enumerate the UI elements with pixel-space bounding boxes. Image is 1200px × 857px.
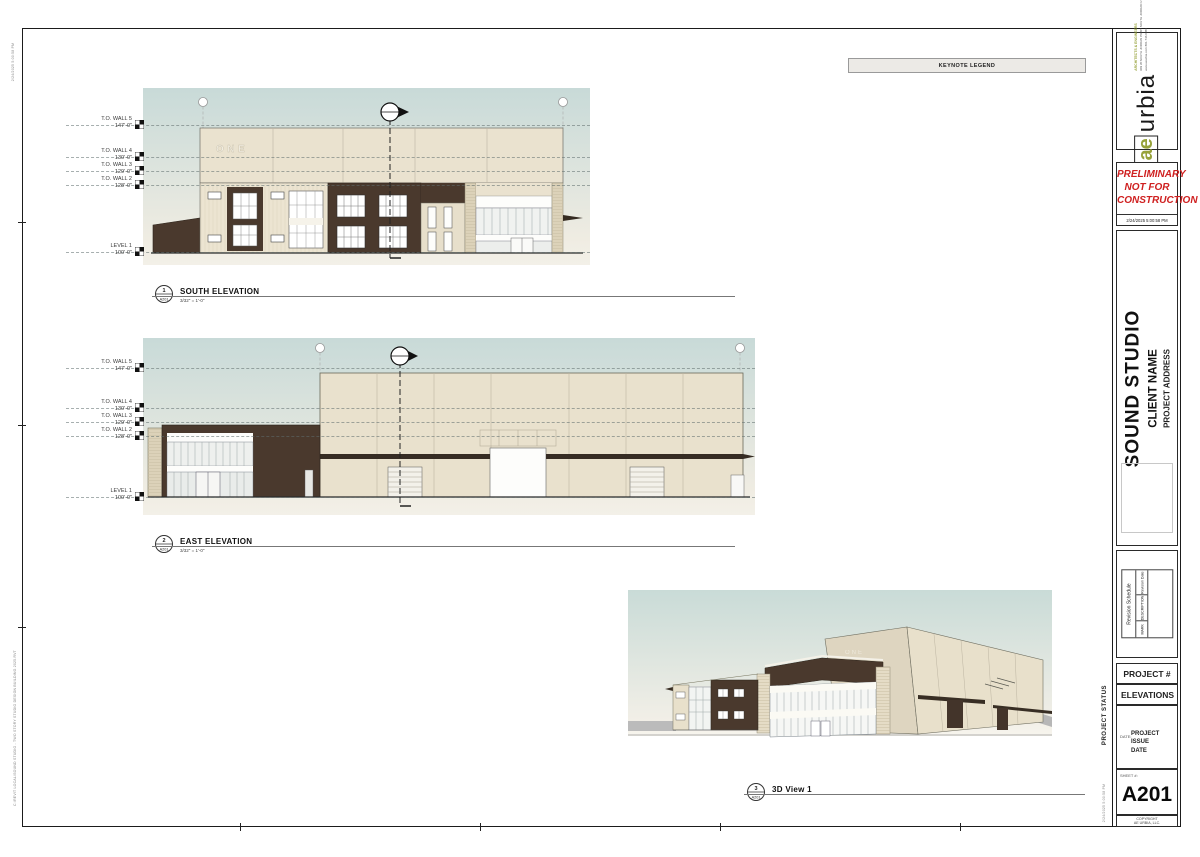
- issue-date: PROJECT ISSUE DATE: [1131, 730, 1177, 755]
- brick-texture: [148, 428, 162, 497]
- canopy-right: [546, 454, 743, 459]
- tan-strip: [673, 685, 689, 730]
- small-window: [676, 692, 685, 698]
- svg-text:2: 2: [162, 538, 165, 544]
- view-title: 3D View 1: [772, 785, 812, 794]
- level-line: [66, 125, 590, 126]
- keynote-legend-header: KEYNOTE LEGEND: [848, 58, 1086, 73]
- entry-door: [811, 721, 820, 736]
- level-marker-icon: [135, 152, 144, 161]
- client-name: CLIENT NAME: [1148, 309, 1160, 467]
- view-callout-icon: 2 A201: [152, 534, 176, 554]
- issue-date-line: DATE: [1131, 747, 1177, 755]
- level-marker-icon: [135, 247, 144, 256]
- project-status-text: PROJECT STATUS: [1102, 685, 1108, 745]
- building-sign: ONE: [845, 650, 864, 656]
- level-marker-icon: [135, 120, 144, 129]
- project-address: PROJECT ADDRESS: [1163, 309, 1172, 467]
- brick-texture: [552, 183, 563, 253]
- preliminary-line: PRELIMINARY: [1117, 168, 1177, 181]
- level-line: [66, 408, 755, 409]
- logo-box: ae urbia ARCHITECTS & ENGINEERS 909 W SO…: [1116, 32, 1178, 150]
- fascia-band: [476, 196, 552, 208]
- level-line: [66, 497, 755, 498]
- project-status-strip: PROJECT STATUS: [1098, 655, 1112, 775]
- level-marker-icon: [135, 417, 144, 426]
- sheet-number-label: SHEET #:: [1120, 773, 1138, 778]
- grid-bubble: [559, 98, 568, 107]
- border-tick: [480, 823, 481, 831]
- revision-schedule-header: MARK DESCRIPTION Revision Date: [1136, 571, 1148, 638]
- grid-bubble: [199, 98, 208, 107]
- svg-text:A201: A201: [752, 796, 761, 800]
- level-line: [66, 436, 755, 437]
- entry-door: [821, 721, 830, 736]
- tan-wall: [421, 203, 465, 253]
- view-title-rule: [152, 296, 735, 297]
- 3d-view-drawing: ONE: [625, 588, 1055, 772]
- level-line: [66, 252, 590, 253]
- building-sign: ONE: [216, 144, 248, 155]
- level-line: [66, 368, 755, 369]
- fascia-band: [167, 433, 253, 442]
- level-label: LEVEL 1100'-0": [58, 488, 132, 502]
- plot-stamp-path: C:\REVIT LOCAL\SOUND STUDIO - TWO STORY …: [8, 630, 22, 826]
- level-marker-icon: [135, 363, 144, 372]
- border-tick: [18, 425, 26, 426]
- glass-strip: [689, 687, 711, 730]
- brick-texture: [876, 667, 890, 734]
- titleblock-divider: [1112, 28, 1113, 827]
- ground-pad-left: [628, 721, 676, 731]
- svg-text:3: 3: [754, 786, 757, 792]
- view-callout-icon: 3 A201: [744, 782, 768, 802]
- plot-stamp-side-text: 2/24/2025 5:00:58 PM: [1102, 784, 1106, 822]
- upper-wall: [200, 128, 563, 183]
- preliminary-datetime: 2/24/2025 5:00:58 PM: [1117, 214, 1177, 225]
- window: [233, 225, 257, 246]
- brick-texture: [757, 674, 770, 733]
- sheet-number: A201: [1117, 783, 1177, 807]
- revision-col-date: Revision Date: [1136, 571, 1147, 595]
- canopy-left: [293, 454, 490, 459]
- border-tick: [18, 627, 26, 628]
- preliminary-stamp-box: PRELIMINARY NOT FOR CONSTRUCTION 2/24/20…: [1116, 162, 1178, 226]
- level-marker-icon: [135, 166, 144, 175]
- issue-date-line: PROJECT ISSUE: [1131, 730, 1177, 747]
- keynote-legend-title: KEYNOTE LEGEND: [939, 63, 996, 69]
- copyright-line: AE URBIA, LLC.: [1134, 821, 1160, 825]
- logo-details: ARCHITECTS & ENGINEERS 909 W SOUTH JORDA…: [1134, 19, 1148, 71]
- view-title-rule: [744, 794, 1085, 795]
- stamp-area-box: [1121, 463, 1173, 533]
- sheet-title-box: ELEVATIONS: [1116, 684, 1178, 705]
- copyright-box: COPYRIGHT AE URBIA, LLC.: [1116, 815, 1178, 827]
- south-elevation-drawing: ONE: [143, 88, 590, 265]
- revision-schedule-box: Revision Schedule MARK DESCRIPTION Revis…: [1116, 550, 1178, 658]
- preliminary-line: NOT FOR: [1117, 181, 1177, 194]
- level-marker-icon: [135, 403, 144, 412]
- level-label: T.O. WALL 3129'-0": [58, 413, 132, 427]
- window-band: [289, 218, 323, 225]
- preliminary-stamp: PRELIMINARY NOT FOR CONSTRUCTION: [1117, 163, 1177, 207]
- level-label: T.O. WALL 2128'-0": [58, 176, 132, 190]
- curtain-glass: [167, 442, 253, 466]
- border-tick: [720, 823, 721, 831]
- logo-contact: www.aeurbia.com 801.746.0456: [1144, 19, 1149, 71]
- revision-col-description: DESCRIPTION: [1136, 595, 1147, 621]
- plot-stamp-side: 2/24/2025 5:00:58 PM: [1098, 778, 1110, 828]
- drawing-sheet: 2/24/2025 5:00:58 PM C:\REVIT LOCAL\SOUN…: [0, 0, 1200, 857]
- svg-text:A201: A201: [160, 298, 169, 302]
- ae-urbia-logo: ae urbia ARCHITECTS & ENGINEERS 909 W SO…: [1134, 19, 1160, 164]
- level-line: [66, 185, 590, 186]
- border-tick: [18, 222, 26, 223]
- service-door: [731, 475, 744, 497]
- door: [997, 708, 1008, 730]
- plot-stamp-datetime: 2/24/2025 5:00:58 PM: [11, 43, 15, 81]
- svg-text:A201: A201: [160, 548, 169, 552]
- view-scale: 3/32" = 1'-0": [180, 548, 204, 553]
- level-label: T.O. WALL 4130'-0": [58, 148, 132, 162]
- revision-schedule-title: Revision Schedule: [1122, 571, 1136, 638]
- border-tick: [960, 823, 961, 831]
- level-line: [66, 422, 755, 423]
- grid-bubble: [316, 344, 325, 353]
- level-label: T.O. WALL 5147'-0": [58, 359, 132, 373]
- grid-bubble: [736, 344, 745, 353]
- project-name: SOUND STUDIO: [1123, 309, 1145, 467]
- level-marker-icon: [135, 492, 144, 501]
- level-marker-icon: [135, 180, 144, 189]
- revision-schedule-table: Revision Schedule MARK DESCRIPTION Revis…: [1121, 570, 1173, 639]
- issue-date-box: DATE: PROJECT ISSUE DATE: [1116, 705, 1178, 769]
- preliminary-line: CONSTRUCTION: [1117, 194, 1177, 207]
- view-scale: 3/32" = 1'-0": [180, 298, 204, 303]
- revision-rows-empty: [1148, 571, 1172, 638]
- view-title: EAST ELEVATION: [180, 537, 252, 546]
- revision-col-mark: MARK: [1136, 620, 1147, 637]
- level-marker-icon: [135, 431, 144, 440]
- level-label: T.O. WALL 3129'-0": [58, 162, 132, 176]
- project-number-box: PROJECT #: [1116, 663, 1178, 684]
- large-opening: [490, 448, 546, 497]
- border-tick: [240, 823, 241, 831]
- plot-stamp-path-text: C:\REVIT LOCAL\SOUND STUDIO - TWO STORY …: [13, 650, 17, 806]
- svg-text:1: 1: [162, 288, 165, 294]
- logo-urbia-text: urbia: [1134, 74, 1160, 132]
- logo-tagline: ARCHITECTS & ENGINEERS: [1134, 19, 1139, 71]
- brown-band: [421, 183, 465, 203]
- project-identity: SOUND STUDIO CLIENT NAME PROJECT ADDRESS: [1123, 309, 1172, 467]
- small-window: [676, 714, 685, 720]
- date-label: DATE:: [1120, 734, 1131, 739]
- view-title-rule: [152, 546, 735, 547]
- level-line: [66, 171, 590, 172]
- brown-block: [711, 680, 758, 730]
- level-label: T.O. WALL 2128'-0": [58, 427, 132, 441]
- level-label: LEVEL 1100'-0": [58, 243, 132, 257]
- plot-stamp-top: 2/24/2025 5:00:58 PM: [6, 30, 20, 94]
- view-title: SOUTH ELEVATION: [180, 287, 259, 296]
- brick-texture: [465, 183, 476, 253]
- window-slit: [305, 470, 313, 497]
- east-elevation-drawing: [143, 338, 755, 515]
- level-line: [66, 157, 590, 158]
- curtain-glass: [476, 208, 552, 235]
- view-callout-icon: 1 A201: [152, 284, 176, 304]
- band: [167, 466, 253, 472]
- door: [947, 700, 963, 728]
- level-label: T.O. WALL 4130'-0": [58, 399, 132, 413]
- level-label: T.O. WALL 5147'-0": [58, 116, 132, 130]
- logo-ae-mark: ae: [1134, 135, 1158, 163]
- sheet-number-box: SHEET #: A201: [1116, 769, 1178, 815]
